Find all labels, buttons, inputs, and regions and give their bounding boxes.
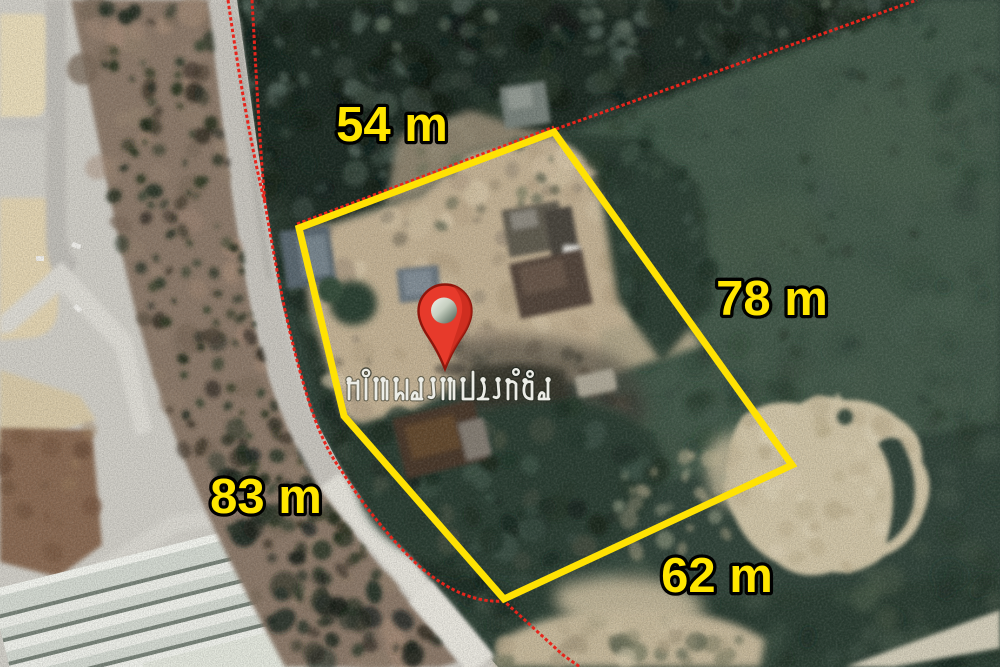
svg-text:78 m: 78 m [716, 272, 828, 326]
svg-text:62 m: 62 m [661, 549, 773, 603]
svg-text:54 m: 54 m [336, 98, 448, 152]
svg-text:83 m: 83 m [210, 470, 322, 524]
